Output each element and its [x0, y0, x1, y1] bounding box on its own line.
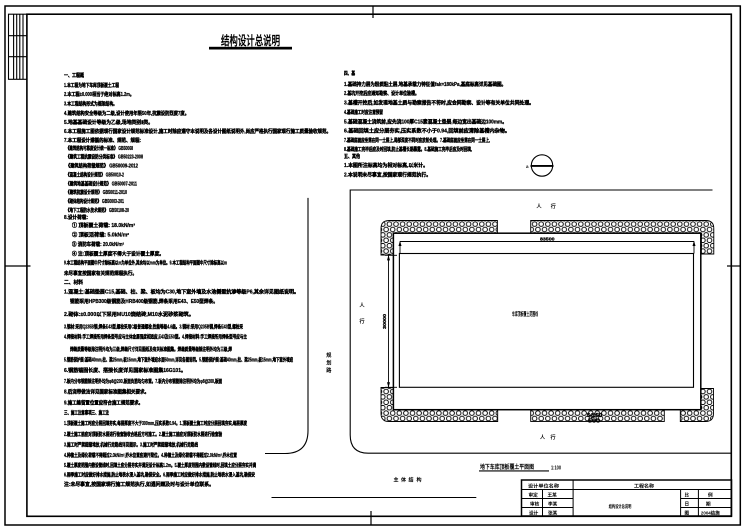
svg-text:构: 构: [417, 477, 422, 484]
svg-text:7.基础底面应坐落在同一土层上,局部深度不同时应放阶处理。7: 7.基础底面应坐落在同一土层上,局部深度不同时应放阶处理。7.基础底面应坐落在同…: [344, 137, 490, 144]
svg-text:7.本工程设计遵循的标准、规范、规程:: 7.本工程设计遵循的标准、规范、规程:: [64, 137, 141, 144]
svg-text:车库顶板覆土范围线: 车库顶板覆土范围线: [512, 310, 538, 318]
svg-text:30000: 30000: [382, 314, 388, 329]
svg-text:《建筑结构可靠度设计统一标准》 GB50068: 《建筑结构可靠度设计统一标准》 GB50068: [66, 145, 133, 152]
svg-text:8.设计荷载:: 8.设计荷载:: [64, 214, 88, 221]
svg-text:② 顶板活荷载: 5.0kN/m²: ② 顶板活荷载: 5.0kN/m²: [72, 231, 129, 238]
svg-text:2.砌体:±0.000以下采用MU10烧结砖,M10水泥砂浆: 2.砌体:±0.000以下采用MU10烧结砖,M10水泥砂浆砌筑。: [64, 311, 194, 318]
svg-text:1.本图所注标高均为相对标高,以米计。: 1.本图所注标高均为相对标高,以米计。: [344, 162, 428, 169]
svg-text:5.钢筋保护层:基础40mm,柱、梁25mm,板15mm,地: 5.钢筋保护层:基础40mm,柱、梁25mm,板15mm,地下室外墙迎水面50m…: [64, 357, 293, 364]
svg-text:四、基: 四、基: [344, 70, 356, 77]
svg-text:《建筑地基基础设计规范》 GB50007-2011: 《建筑地基基础设计规范》 GB50007-2011: [66, 181, 137, 188]
svg-text:审定: 审定: [529, 492, 539, 499]
svg-text:设计单位名称: 设计单位名称: [528, 482, 559, 489]
svg-text:《地下工程防水技术规范》 GB50108-20: 《地下工程防水技术规范》 GB50108-20: [66, 207, 129, 214]
svg-text:6.钢筋锚固长度、搭接长度详见国家标准图集16G101。: 6.钢筋锚固长度、搭接长度详见国家标准图集16G101。: [64, 367, 186, 374]
svg-text:④ 注:顶板覆土厚度不得大于设计覆土厚度。: ④ 注:顶板覆土厚度不得大于设计覆土厚度。: [72, 250, 164, 257]
svg-text:焊缝质量等级除注明外均为三级,焊缝尺寸详见图纸及有关标准图集: 焊缝质量等级除注明外均为三级,焊缝尺寸详见图纸及有关标准图集。焊缝质量等级除注明…: [70, 346, 232, 353]
svg-text:行: 行: [550, 203, 556, 210]
svg-text:3.施工时严禁超载堆放,机械行走路线详见图示。3.施工时严禁: 3.施工时严禁超载堆放,机械行走路线详见图示。3.施工时严禁超载堆放,机械行走路…: [64, 441, 198, 448]
svg-text:王某: 王某: [548, 492, 558, 499]
svg-text:结构设计总说明: 结构设计总说明: [221, 33, 280, 48]
svg-text:审核: 审核: [530, 501, 540, 508]
svg-text:日: 日: [685, 501, 690, 508]
svg-text:注:未尽事宜,按国家现行施工规范执行,如遇问题及时与设计单位: 注:未尽事宜,按国家现行施工规范执行,如遇问题及时与设计单位联系。: [64, 481, 214, 488]
svg-text:例: 例: [708, 492, 713, 499]
svg-text:未尽事宜按国家有关规范规程执行。: 未尽事宜按国家有关规范规程执行。: [63, 270, 137, 277]
svg-text:4.建筑结构安全等级为二级,设计使用年限50年,抗震设防烈度: 4.建筑结构安全等级为二级,设计使用年限50年,抗震设防烈度7度。: [64, 110, 189, 117]
svg-text:500: 500: [588, 419, 600, 425]
svg-text:李某: 李某: [547, 501, 558, 508]
svg-text:2.覆土施工前应对顶板防水层进行检查验收合格后方可施工。2.: 2.覆土施工前应对顶板防水层进行检查验收合格后方可施工。2.覆土施工前应对顶板防…: [64, 431, 222, 438]
svg-text:6.本工程施工图依据现行国家设计规范标准设计,施工时除应遵守: 6.本工程施工图依据现行国家设计规范标准设计,施工时除应遵守本说明及各设计图纸说…: [64, 128, 331, 135]
svg-text:《混凝土结构设计规范》 GB50010-2: 《混凝土结构设计规范》 GB50010-2: [66, 172, 124, 179]
svg-text:5.基础混凝土浇筑前,应先浇100厚C15素混凝土垫层,每边: 5.基础混凝土浇筑前,应先浇100厚C15素混凝土垫层,每边宽出基础边100mm…: [344, 118, 507, 125]
svg-text:③ 消防车荷载: 20.0kN/m²: ③ 消防车荷载: 20.0kN/m²: [72, 241, 124, 248]
svg-text:设计: 设计: [529, 509, 539, 516]
svg-text:6.基础回填土应分层夯实,压实系数不小于0.94,回填前应清: 6.基础回填土应分层夯实,压实系数不小于0.94,回填前应清除基槽内杂物。: [344, 128, 510, 135]
svg-text:4.种植土及绿化荷载不得超过2.0kN/m²,乔木位置应避开: 4.种植土及绿化荷载不得超过2.0kN/m²,乔木位置应避开梁位。4.种植土及绿…: [64, 452, 237, 459]
svg-text:1.顶板覆土施工时应分层回填夯实,每层厚度不大于300mm,: 1.顶板覆土施工时应分层回填夯实,每层厚度不大于300mm,压实系数0.94。1…: [64, 420, 248, 427]
svg-text:《建筑抗震设计规范》 GB50011-2010: 《建筑抗震设计规范》 GB50011-2010: [66, 189, 127, 196]
svg-text:2.本说明未尽事宜,按国家现行规范执行。: 2.本说明未尽事宜,按国家现行规范执行。: [344, 172, 431, 179]
svg-text:划: 划: [326, 359, 331, 367]
svg-text:比: 比: [685, 492, 690, 499]
svg-text:1.混凝土:基础垫层C15,基础、柱、梁、板均为C30,地下: 1.混凝土:基础垫层C15,基础、柱、梁、板均为C30,地下室外墙及水池侧壁抗渗…: [64, 289, 299, 296]
svg-text:人: 人: [539, 434, 546, 441]
svg-text:5.地基基础设计等级为乙级,场地类别Ⅱ类。: 5.地基基础设计等级为乙级,场地类别Ⅱ类。: [64, 119, 153, 126]
svg-text:主: 主: [394, 477, 399, 484]
svg-text:《砌体结构设计规范》 GB50003-201: 《砌体结构设计规范》 GB50003-201: [66, 198, 124, 205]
svg-text:2004结施: 2004结施: [701, 509, 720, 516]
svg-text:结: 结: [409, 477, 414, 484]
svg-text:① 顶板覆土荷载: 18.0kN/m³: ① 顶板覆土荷载: 18.0kN/m³: [72, 222, 135, 229]
svg-text:结构设计总说明: 结构设计总说明: [609, 503, 632, 510]
svg-text:9.本工程结构平面图中尺寸除标高以m为单位外,其余均以mm为: 9.本工程结构平面图中尺寸除标高以m为单位外,其余均以mm为单位。9.本工程结构…: [64, 259, 227, 266]
svg-text:《建筑工程抗震设防分类标准》 GB50223-2008: 《建筑工程抗震设防分类标准》 GB50223-2008: [66, 154, 143, 161]
svg-text:7.板内分布钢筋除注明外均为φ8@200,板面负筋均匀布置。: 7.板内分布钢筋除注明外均为φ8@200,板面负筋均匀布置。7.板内分布钢筋除注…: [64, 378, 222, 385]
svg-text:5.覆土厚度范围内敷设管线时,回填土应分层夯实并满足设计标高: 5.覆土厚度范围内敷设管线时,回填土应分层夯实并满足设计标高1.2m。5.覆土厚…: [64, 462, 256, 469]
svg-text:图: 图: [685, 509, 690, 516]
svg-text:行: 行: [550, 434, 556, 441]
svg-text:规: 规: [326, 351, 332, 359]
svg-text:4.基础施工时应注意预留: 4.基础施工时应注意预留: [344, 109, 383, 116]
svg-text:路: 路: [326, 366, 332, 374]
svg-text:二、材料: 二、材料: [64, 279, 83, 286]
svg-text:五、其他: 五、其他: [344, 153, 360, 160]
svg-text:《建筑结构荷载规范》 GB50009-2012: 《建筑结构荷载规范》 GB50009-2012: [66, 162, 138, 169]
svg-text:8.后浇带做法详见国家标准图集相关要求。: 8.后浇带做法详见国家标准图集相关要求。: [64, 389, 149, 396]
svg-text:地下车库顶板覆土平面图: 地下车库顶板覆土平面图: [480, 463, 534, 471]
svg-text:张某: 张某: [548, 509, 558, 516]
svg-text:工程名称: 工程名称: [634, 482, 654, 489]
svg-text:钢筋采用HPB300级钢筋及HRB400级钢筋,焊条采用E4: 钢筋采用HPB300级钢筋及HRB400级钢筋,焊条采用E43、E50型焊条。: [70, 298, 218, 305]
svg-text:1.基础持力层为粉质粘土层,地基承载力特征值fak=180k: 1.基础持力层为粉质粘土层,地基承载力特征值fak=180kPa,基底标高详见基…: [344, 81, 506, 88]
svg-text:3.基槽开挖后,如发现地基土质与勘察报告不符时,应会同勘察、: 3.基槽开挖后,如发现地基土质与勘察报告不符时,应会同勘察、设计等有关单位共同处…: [344, 100, 534, 107]
svg-text:3.本工程结构形式为框架结构。: 3.本工程结构形式为框架结构。: [64, 101, 117, 108]
svg-text:1.本工程为地下车库顶板覆土工程: 1.本工程为地下车库顶板覆土工程: [64, 82, 119, 89]
svg-text:9.施工缝留置位置应符合施工规范要求。: 9.施工缝留置位置应符合施工规范要求。: [64, 400, 143, 407]
svg-text:一、工程概: 一、工程概: [64, 72, 84, 79]
svg-text:行: 行: [359, 318, 365, 325]
svg-text:2.本工程±0.000相当于绝对标高1.2m。: 2.本工程±0.000相当于绝对标高1.2m。: [64, 91, 134, 98]
svg-text:83500: 83500: [540, 236, 555, 242]
svg-text:4.焊接材料:手工焊接所用焊条型号应与主体金属强度相适应,E: 4.焊接材料:手工焊接所用焊条型号应与主体金属强度相适应,E43及E50型。4.…: [64, 333, 247, 340]
svg-text:人: 人: [359, 302, 366, 309]
svg-text:2.基坑开挖后应通知勘察、设计单位验槽。: 2.基坑开挖后应通知勘察、设计单位验槽。: [344, 90, 419, 97]
svg-text:6.雨季施工时应做好排水措施,防止地表水浸入基坑,确保安全。: 6.雨季施工时应做好排水措施,防止地表水浸入基坑,确保安全。6.雨季施工时应做好…: [64, 472, 255, 479]
svg-text:三、施工注意事项三、施工注: 三、施工注意事项三、施工注: [64, 410, 109, 417]
svg-text:1:100: 1:100: [551, 466, 561, 472]
svg-text:3.钢材:采用Q235B钢,焊条E43型,螺栓采用C级普通螺: 3.钢材:采用Q235B钢,焊条E43型,螺栓采用C级普通螺栓,性能等级4.6级…: [64, 324, 244, 331]
svg-text:8.基础施工完毕后应及时回填,防止基槽长期暴露。8.基础施工: 8.基础施工完毕后应及时回填,防止基槽长期暴露。8.基础施工完毕后应及时回填,: [344, 146, 472, 153]
svg-text:人: 人: [536, 203, 543, 210]
svg-text:期: 期: [706, 501, 711, 508]
